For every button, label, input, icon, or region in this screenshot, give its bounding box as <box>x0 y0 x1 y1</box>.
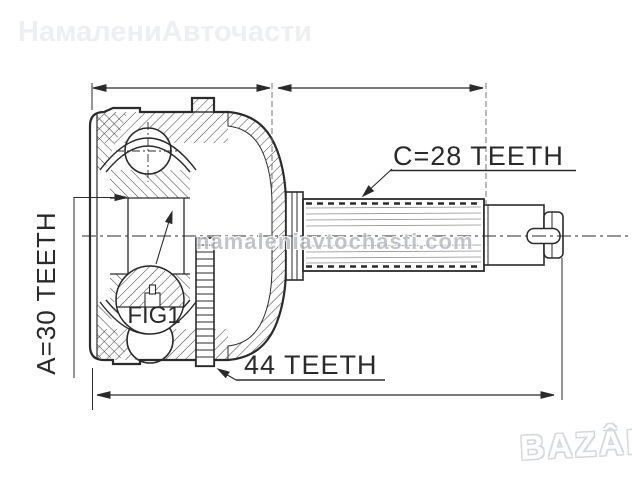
label-abs-ring-teeth: 44 TEETH <box>244 352 378 379</box>
label-inner-spline-teeth: A=30 TEETH <box>33 193 61 393</box>
label-fig1: FIG1 <box>122 304 186 328</box>
abs-ring-ladder <box>196 238 214 366</box>
label-shaft-spline-teeth: C=28 TEETH <box>393 143 564 170</box>
watermark-top-left: НамалениАвточасти <box>18 16 312 49</box>
logo-bazar: BAZÂR <box>519 423 632 469</box>
technical-drawing-page: НамалениАвточасти C=28 TEETH A=30 TEETH … <box>0 0 632 480</box>
watermark-center: namaleniavtochasti.com <box>196 229 474 255</box>
